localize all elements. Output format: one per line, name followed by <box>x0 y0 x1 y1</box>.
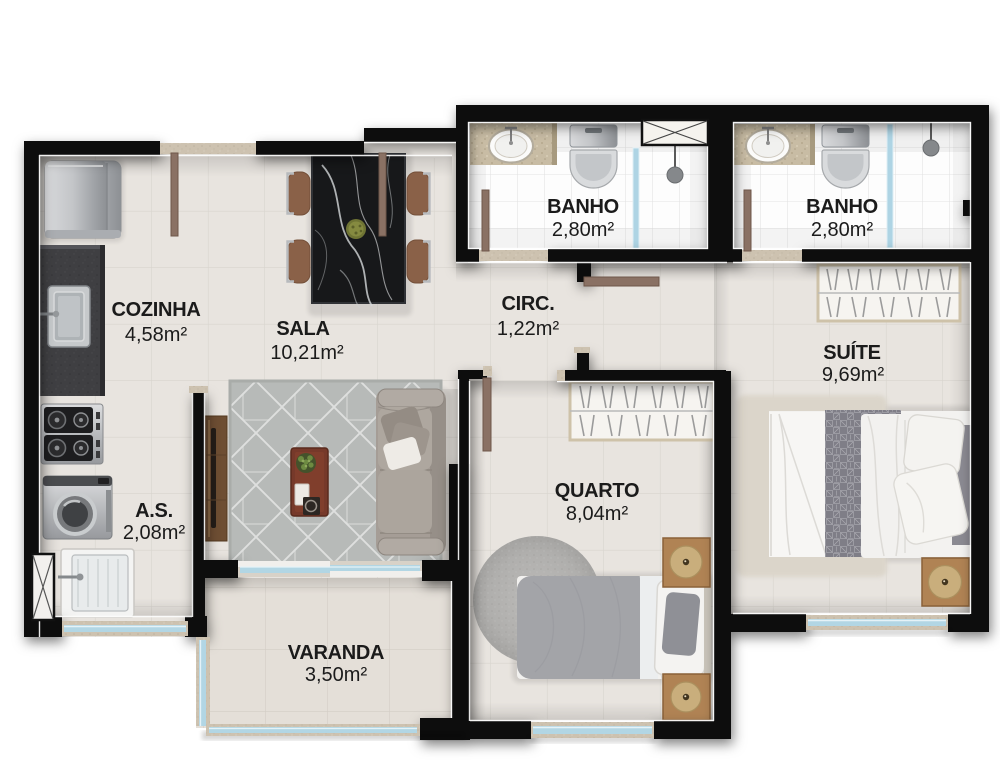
svg-text:VARANDA: VARANDA <box>288 642 384 664</box>
svg-text:2,80m²: 2,80m² <box>552 219 615 241</box>
svg-text:BANHO: BANHO <box>806 196 878 218</box>
svg-text:A.S.: A.S. <box>135 500 173 522</box>
svg-text:COZINHA: COZINHA <box>111 299 200 321</box>
svg-text:3,50m²: 3,50m² <box>305 664 368 686</box>
svg-text:BANHO: BANHO <box>547 196 619 218</box>
svg-text:SALA: SALA <box>276 318 329 340</box>
svg-text:4,58m²: 4,58m² <box>125 324 188 346</box>
svg-text:8,04m²: 8,04m² <box>566 503 629 525</box>
svg-text:9,69m²: 9,69m² <box>822 364 885 386</box>
svg-text:CIRC.: CIRC. <box>502 293 555 315</box>
svg-text:SUÍTE: SUÍTE <box>823 341 880 364</box>
svg-text:10,21m²: 10,21m² <box>270 342 344 364</box>
svg-text:QUARTO: QUARTO <box>555 480 640 502</box>
svg-text:1,22m²: 1,22m² <box>497 318 560 340</box>
svg-text:2,08m²: 2,08m² <box>123 522 186 544</box>
svg-text:2,80m²: 2,80m² <box>811 219 874 241</box>
